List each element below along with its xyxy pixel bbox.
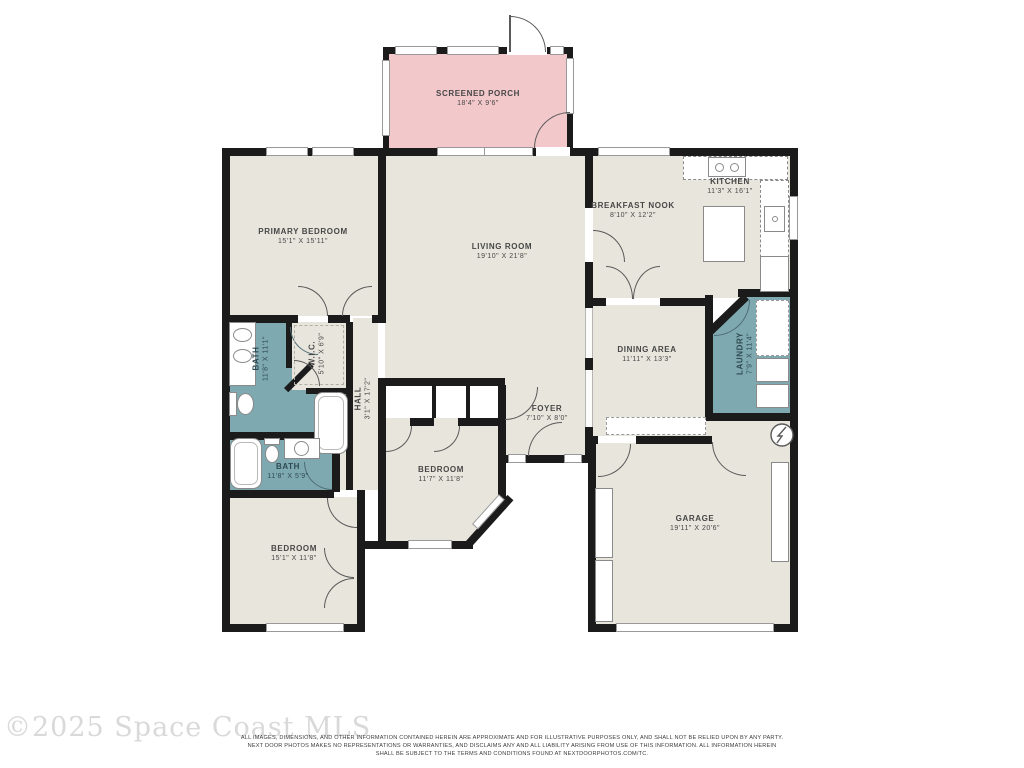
primary-window-b <box>312 147 354 156</box>
room-dims: 11'8" X 11'1" <box>262 304 272 414</box>
garage-shelf-left-b <box>595 560 613 622</box>
water-heater-icon <box>768 421 796 449</box>
room-name: W.I.C. <box>307 299 318 409</box>
sink-drain-icon <box>772 216 778 222</box>
label-primary-bedroom: PRIMARY BEDROOM 15'1" X 15'11" <box>228 226 378 247</box>
kitchen-sink <box>764 206 785 232</box>
disclaimer-line: SHALL BE SUBJECT TO THE TERMS AND CONDIT… <box>0 750 1024 758</box>
wall-closet-divider-b <box>466 386 470 418</box>
room-dims: 7'10" X 8'0" <box>472 414 622 424</box>
label-dining-area: DINING AREA 11'11" X 13'3" <box>572 344 722 365</box>
room-name: BEDROOM <box>219 543 369 554</box>
room-dims: 7'9" X 11'4" <box>746 299 756 409</box>
vanity-sink-icon <box>233 349 252 363</box>
label-wic: W.I.C. 5'10" X 6'9" <box>307 299 328 409</box>
cooktop-burner-icon <box>715 163 724 172</box>
porch-window-top-c <box>550 46 564 55</box>
garage-door <box>616 623 774 632</box>
vanity-sink-icon <box>233 328 252 342</box>
room-name: LAUNDRY <box>735 299 746 409</box>
primary-window-a <box>266 147 308 156</box>
room-dims: 11'7" X 11'8" <box>366 475 516 485</box>
porch-window-right <box>566 58 574 114</box>
nook-window <box>598 147 670 156</box>
label-bedroom-middle: BEDROOM 11'7" X 11'8" <box>366 464 516 485</box>
label-kitchen: KITCHEN 11'3" X 16'1" <box>655 176 805 197</box>
bedroom-middle-window <box>408 540 452 549</box>
garage-shelf-left-a <box>595 488 613 558</box>
room-name: FOYER <box>472 403 622 414</box>
room-dims: 11'11" X 13'3" <box>572 355 722 365</box>
disclaimer-line: ALL IMAGES, DIMENSIONS, AND OTHER INFORM… <box>0 734 1024 742</box>
room-name: PRIMARY BEDROOM <box>228 226 378 237</box>
room-dims: 11'8" X 5'9" <box>228 472 348 482</box>
bath2-toilet-tank <box>264 438 280 445</box>
primary-toilet-tank <box>229 392 237 416</box>
cooktop-burner-icon <box>730 163 739 172</box>
room-dims: 5'10" X 6'9" <box>318 299 328 409</box>
refrigerator <box>760 256 789 292</box>
label-garage: GARAGE 19'11" X 20'6" <box>620 513 770 534</box>
porch-to-living-opening <box>536 147 570 156</box>
wall-closet-row-bottom-b <box>410 418 434 426</box>
wall-laundry-bottom <box>705 413 798 421</box>
label-foyer: FOYER 7'10" X 8'0" <box>472 403 622 424</box>
room-name: SCREENED PORCH <box>398 88 558 99</box>
room-dims: 15'1" X 11'8" <box>219 554 369 564</box>
room-dims: 11'3" X 16'1" <box>655 187 805 197</box>
label-breakfast-nook: BREAKFAST NOOK 8'10" X 12'2" <box>558 200 708 221</box>
garage-shelf-right <box>771 462 789 562</box>
bedroom-left-window <box>266 623 344 632</box>
label-laundry: LAUNDRY 7'9" X 11'4" <box>735 299 756 409</box>
room-name: DINING AREA <box>572 344 722 355</box>
label-primary-bath: BATH 11'8" X 11'1" <box>251 304 272 414</box>
room-dims: 19'11" X 20'6" <box>620 524 770 534</box>
washer <box>756 358 789 382</box>
room-name: BREAKFAST NOOK <box>558 200 708 211</box>
wall-living-nook-a <box>585 148 593 208</box>
label-hall: HALL 3'1" X 17'2" <box>353 344 374 454</box>
wall-nook-dining-b <box>660 298 712 306</box>
porch-window-top-a <box>395 46 437 55</box>
room-dims: 3'1" X 17'2" <box>364 344 374 454</box>
label-bedroom-left: BEDROOM 15'1" X 11'8" <box>219 543 369 564</box>
disclaimer-line: NEXT DOOR PHOTOS MAKES NO REPRESENTATION… <box>0 742 1024 750</box>
living-slider-window <box>437 147 533 156</box>
foyer-sidelight-a <box>508 454 526 463</box>
wall-primary-bottom-c <box>372 315 386 323</box>
room-dims: 8'10" X 12'2" <box>558 211 708 221</box>
wall-foyer-right <box>585 427 593 463</box>
room-name: BATH <box>228 461 348 472</box>
room-name: HALL <box>353 344 364 454</box>
floor-plan: SCREENED PORCH 18'4" X 9'6" PRIMARY BEDR… <box>0 0 1024 768</box>
wall-closet-row-top <box>378 378 505 386</box>
wall-primary-living <box>378 148 386 318</box>
label-screened-porch: SCREENED PORCH 18'4" X 9'6" <box>398 88 558 109</box>
wall-garage-top-b <box>636 436 712 444</box>
label-bath2: BATH 11'8" X 5'9" <box>228 461 348 482</box>
room-name: GARAGE <box>620 513 770 524</box>
porch-window-left <box>382 60 390 136</box>
dryer <box>756 384 789 408</box>
room-name: BEDROOM <box>366 464 516 475</box>
porch-window-top-b <box>447 46 499 55</box>
room-dims: 19'10" X 21'8" <box>427 252 577 262</box>
room-dims: 18'4" X 9'6" <box>398 99 558 109</box>
kitchen-window <box>789 196 798 240</box>
wall-closet-divider-a <box>432 386 436 418</box>
room-name: KITCHEN <box>655 176 805 187</box>
disclaimer-text: ALL IMAGES, DIMENSIONS, AND OTHER INFORM… <box>0 734 1024 758</box>
wall-bath2-bottom <box>222 490 334 498</box>
laundry-counter <box>756 300 789 356</box>
room-dims: 15'1" X 15'11" <box>228 237 378 247</box>
porch-entry-door-leaf <box>509 15 511 52</box>
foyer-sidelight-b <box>564 454 582 463</box>
wall-living-nook-b <box>585 262 593 308</box>
label-living-room: LIVING ROOM 19'10" X 21'8" <box>427 241 577 262</box>
kitchen-island <box>703 206 745 262</box>
bath2-sink-icon <box>294 441 309 456</box>
room-name: LIVING ROOM <box>427 241 577 252</box>
living-slider-mullion <box>484 148 485 155</box>
porch-entry-door-arc <box>510 16 546 52</box>
room-name: BATH <box>251 304 262 414</box>
cooktop <box>708 157 746 177</box>
